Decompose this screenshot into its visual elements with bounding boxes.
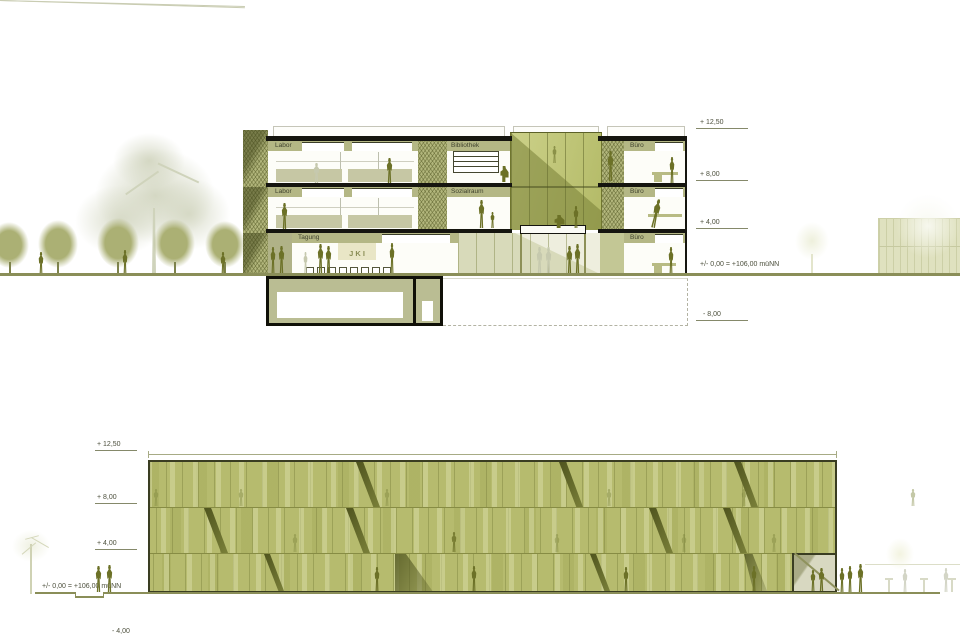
architectural-drawing: Labor Bibliothek Büro Labor Sozialraum B… xyxy=(0,0,960,640)
facade-shadow xyxy=(243,233,268,274)
level-label: - 8,00 xyxy=(703,311,721,319)
jki-sign: J K I xyxy=(338,243,376,260)
room-label-sozialraum: Sozialraum xyxy=(451,188,484,196)
level-line xyxy=(696,180,748,181)
shaft-wall xyxy=(600,187,624,229)
room-label-buero-0: Büro xyxy=(630,234,644,242)
room-label-tagung: Tagung xyxy=(298,234,319,242)
dimension-tick xyxy=(148,451,149,458)
floor-slab xyxy=(266,229,512,233)
roof-slab xyxy=(598,136,687,141)
level-line xyxy=(95,503,137,504)
level-label: - 4,00 xyxy=(112,628,130,636)
shaft-wall xyxy=(418,141,447,183)
dimension-tick xyxy=(836,451,837,458)
room-label-buero-2: Büro xyxy=(630,142,644,150)
level-line xyxy=(95,549,137,550)
desk xyxy=(648,214,682,217)
roof-slab xyxy=(266,136,512,141)
entrance-canopy xyxy=(520,225,586,234)
room-label-labor-1: Labor xyxy=(275,188,292,196)
level-label: + 8,00 xyxy=(97,494,117,502)
tree-faint-trunk xyxy=(811,254,813,275)
basement-room xyxy=(266,276,416,326)
ground-line-section xyxy=(0,273,960,276)
level-line xyxy=(696,228,748,229)
level-label: + 12,50 xyxy=(700,119,724,127)
wall-pier xyxy=(600,233,624,274)
facade-shadow xyxy=(243,187,268,230)
level-line xyxy=(95,450,137,451)
level-line xyxy=(696,320,748,321)
facade-shadow xyxy=(243,130,268,183)
terrace-rail xyxy=(865,564,960,565)
floor-slab xyxy=(598,183,687,187)
jki-sign-text: J K I xyxy=(349,249,365,258)
basement-dashed-outline xyxy=(443,278,688,326)
level-label: +/- 0,00 = +106,00 müNN xyxy=(700,261,779,269)
shaft-wall xyxy=(418,187,447,229)
level-label: + 4,00 xyxy=(700,219,720,227)
level-line xyxy=(696,128,748,129)
dimension-line xyxy=(148,454,837,455)
atrium-glazing xyxy=(510,132,602,230)
floor-slab xyxy=(266,183,512,187)
room-label-bibliothek: Bibliothek xyxy=(451,142,479,150)
person-silhouette xyxy=(839,568,845,592)
facade-floor-2 xyxy=(150,462,835,508)
tree-faint xyxy=(886,538,914,570)
elevation-facade xyxy=(148,460,837,593)
level-label: + 12,50 xyxy=(97,441,121,449)
person-silhouette-faint xyxy=(943,568,949,592)
bookshelf xyxy=(453,151,499,173)
tree-white xyxy=(896,194,960,258)
room-label-labor-2: Labor xyxy=(275,142,292,150)
section-right-wall xyxy=(685,136,687,274)
facade-floor-0 xyxy=(150,554,835,591)
person-silhouette xyxy=(847,566,853,592)
ground-line-elevation xyxy=(35,592,75,594)
room-label-buero-1: Büro xyxy=(630,188,644,196)
basement-shaft xyxy=(413,276,443,326)
level-label: + 8,00 xyxy=(700,171,720,179)
floor-slab xyxy=(598,229,687,233)
person-silhouette-faint xyxy=(902,569,908,592)
person-silhouette xyxy=(857,564,864,592)
level-label: + 4,00 xyxy=(97,540,117,548)
